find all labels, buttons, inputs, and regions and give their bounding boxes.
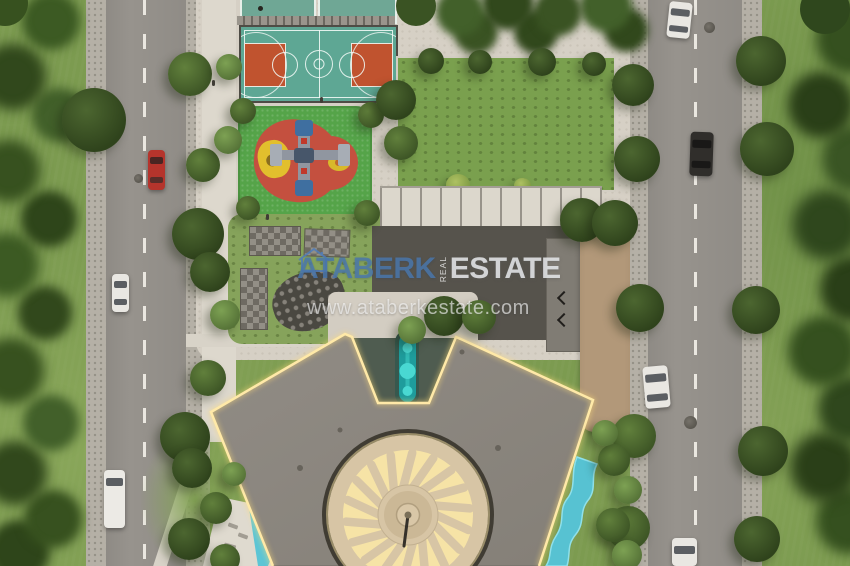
roof-vent [460,350,465,355]
tree [168,518,210,560]
hedge-bush [418,48,444,74]
hedge-bush [468,50,492,74]
main-building-graphic [0,0,850,566]
tree [62,88,126,152]
person [266,214,269,220]
bush [216,54,242,80]
tree [236,196,260,220]
bush [214,126,242,154]
tree [210,544,240,566]
bush [398,316,426,344]
bush [592,420,618,446]
turbine-hub-pin [405,512,412,519]
tree [354,200,380,226]
tree [230,98,256,124]
tree [190,360,226,396]
tree [738,426,788,476]
bush [614,476,642,504]
elevator-core-light [403,343,413,353]
roof-vent [297,465,303,471]
hedge-bush [582,52,606,76]
tree [462,300,496,334]
tree [732,286,780,334]
tree [612,64,654,106]
site-plan-render: ATABERK REAL ESTATE www.ataberkestate.co… [0,0,850,566]
bush [596,508,630,542]
elevator-core-light [400,363,416,379]
bush [210,300,240,330]
tree [740,122,794,176]
tree [172,448,212,488]
tree [424,296,464,336]
roof-vent [495,445,501,451]
person [212,80,215,86]
tree [734,516,780,562]
hedge-bush [528,48,556,76]
person [320,97,323,103]
tree [190,252,230,292]
tree [614,136,660,182]
bush [222,462,246,486]
roof-vent [338,428,343,433]
tree [592,200,638,246]
bush [612,540,642,566]
tree [384,126,418,160]
tree [168,52,212,96]
tree [200,492,232,524]
bush [598,444,630,476]
tree [736,36,786,86]
tree [616,284,664,332]
tree [376,80,416,120]
elevator-core-light [403,386,413,396]
tree [186,148,220,182]
